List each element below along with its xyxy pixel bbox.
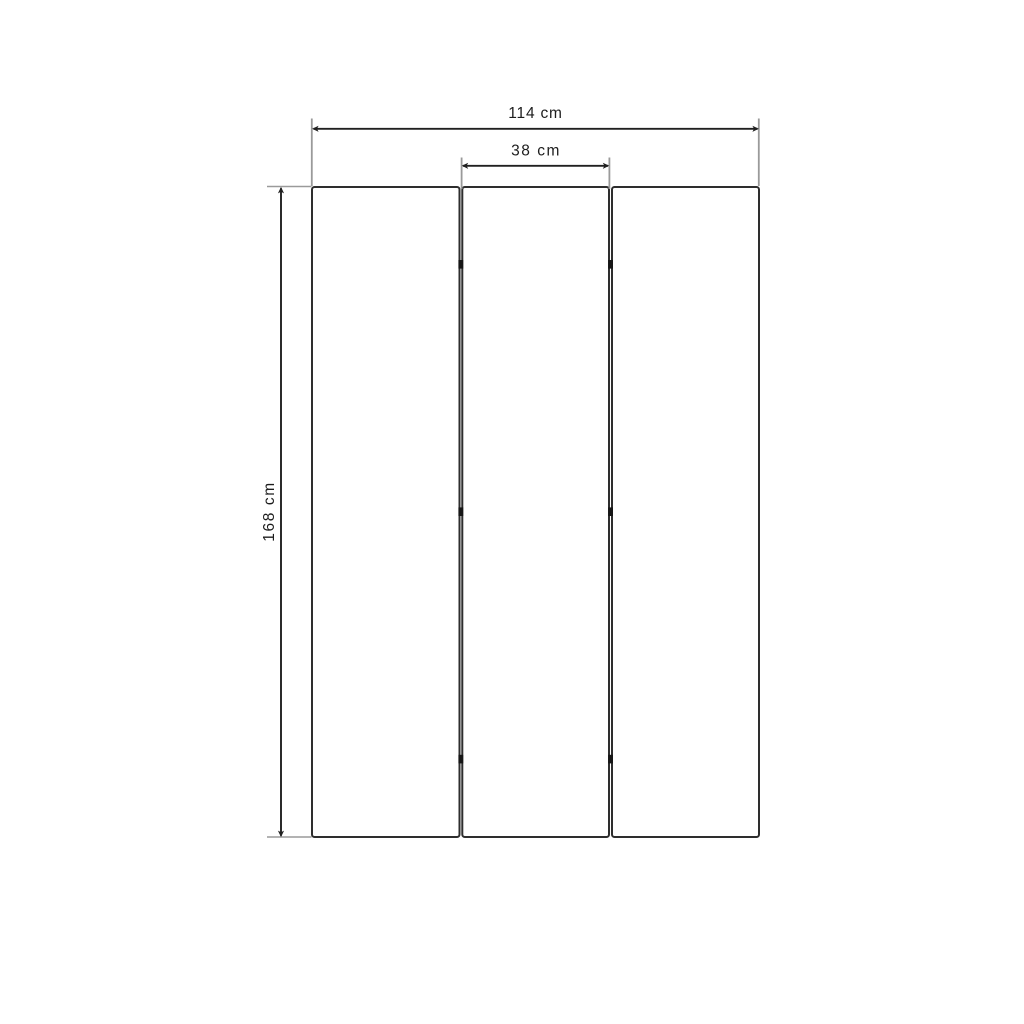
svg-text:38 cm: 38 cm xyxy=(511,143,561,160)
svg-text:114 cm: 114 cm xyxy=(508,105,562,122)
svg-text:168 cm: 168 cm xyxy=(261,481,278,541)
